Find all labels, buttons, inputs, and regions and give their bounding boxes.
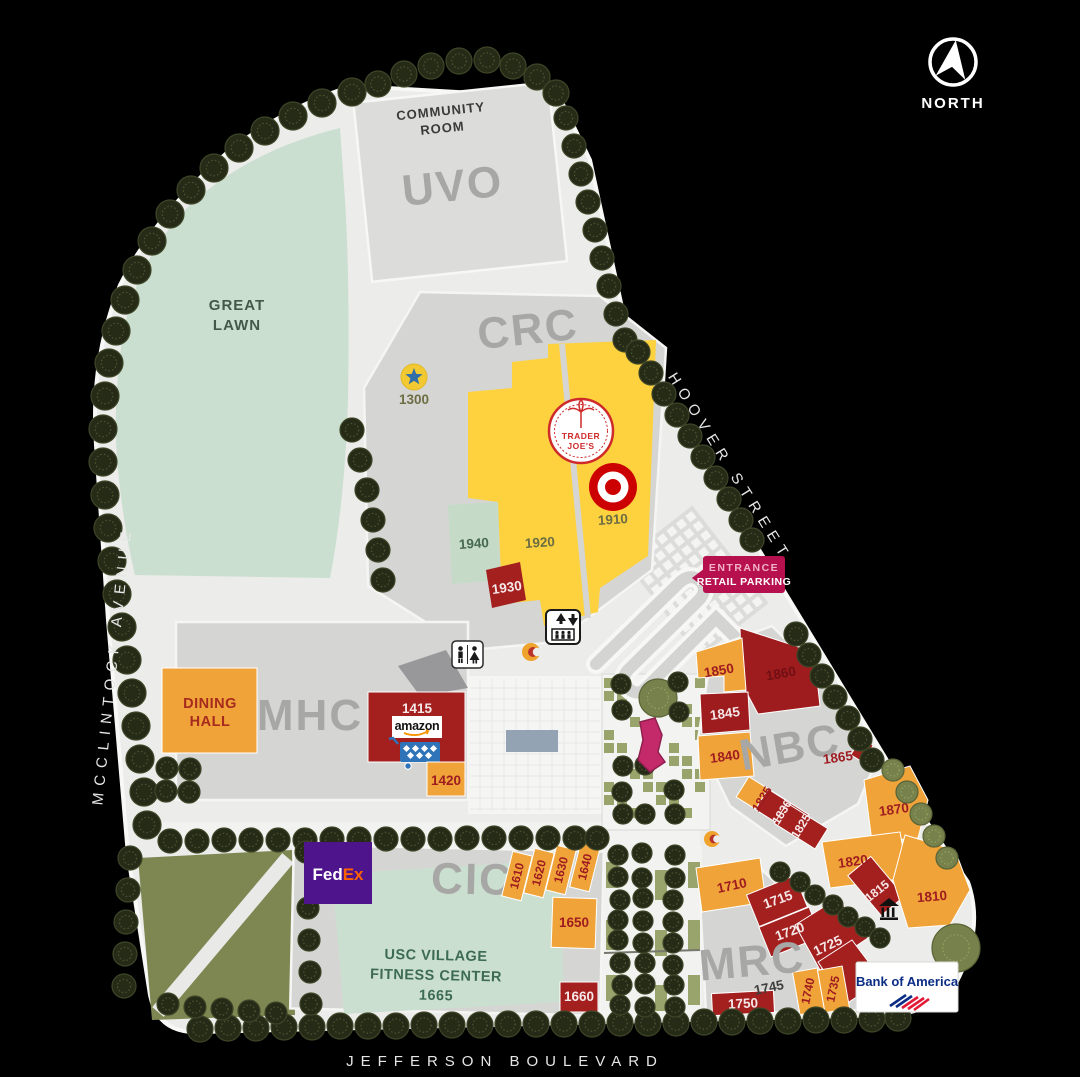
- tree-icon: [632, 868, 652, 888]
- tree-icon: [612, 975, 632, 995]
- tree-icon: [936, 847, 958, 869]
- dining-hall-label: DINING: [183, 696, 237, 712]
- tree-icon: [691, 1009, 717, 1035]
- tree-icon: [179, 758, 201, 780]
- tree-icon: [200, 154, 228, 182]
- tree-icon: [536, 826, 560, 850]
- tree-icon: [635, 974, 655, 994]
- tree-icon: [823, 685, 847, 709]
- tree-icon: [669, 702, 689, 722]
- tree-icon: [509, 826, 533, 850]
- tree-icon: [411, 1012, 437, 1038]
- tree-icon: [608, 845, 628, 865]
- tree-icon: [371, 568, 395, 592]
- tree-icon: [428, 827, 452, 851]
- tree-icon: [116, 878, 140, 902]
- tree-icon: [803, 1007, 829, 1033]
- entrance-retail-parking-sign[interactable]: ENTRANCE RETAIL PARKING: [692, 556, 791, 593]
- elevator-icon: [546, 610, 580, 644]
- usc-village-map: COMMUNITY ROOM UVO GREAT LAWN CRC 1300 T…: [0, 0, 1080, 1077]
- tree-icon: [910, 803, 932, 825]
- tree-icon: [664, 975, 684, 995]
- tree-icon: [300, 993, 322, 1015]
- tree-icon: [590, 246, 614, 270]
- tree-icon: [608, 910, 628, 930]
- tree-icon: [770, 862, 790, 882]
- tree-icon: [184, 996, 206, 1018]
- tree-icon: [474, 47, 500, 73]
- tree-icon: [122, 712, 150, 740]
- tree-icon: [138, 227, 166, 255]
- tree-icon: [665, 997, 685, 1017]
- svg-text:Bank of America: Bank of America: [856, 974, 959, 989]
- svg-text:1665: 1665: [419, 988, 454, 1005]
- tree-icon: [495, 1011, 521, 1037]
- svg-text:1420: 1420: [431, 773, 461, 788]
- tree-icon: [611, 674, 631, 694]
- svg-text:1650: 1650: [559, 915, 589, 930]
- tree-icon: [298, 929, 320, 951]
- tree-icon: [810, 664, 834, 688]
- svg-text:1910: 1910: [597, 511, 628, 528]
- tree-icon: [663, 933, 683, 953]
- tree-icon: [418, 53, 444, 79]
- tree-icon: [665, 804, 685, 824]
- tree-icon: [805, 885, 825, 905]
- tree-icon: [211, 998, 233, 1020]
- tree-icon: [133, 811, 161, 839]
- tree-icon: [585, 826, 609, 850]
- tree-icon: [608, 930, 628, 950]
- tree-icon: [610, 890, 630, 910]
- tree-icon: [610, 953, 630, 973]
- tree-icon: [551, 1011, 577, 1037]
- north-compass: NORTH: [921, 38, 984, 112]
- svg-text:LAWN: LAWN: [213, 317, 261, 334]
- tree-icon: [113, 942, 137, 966]
- tree-icon: [784, 622, 808, 646]
- bank-of-america-sign[interactable]: Bank of America: [856, 962, 959, 1012]
- tree-icon: [112, 974, 136, 998]
- tree-icon: [338, 78, 366, 106]
- tree-icon: [365, 71, 391, 97]
- tree-icon: [663, 890, 683, 910]
- tree-icon: [870, 928, 890, 948]
- uvo-building[interactable]: COMMUNITY ROOM UVO: [353, 82, 567, 282]
- svg-text:ENTRANCE: ENTRANCE: [709, 562, 779, 574]
- tree-icon: [355, 478, 379, 502]
- tree-icon: [225, 134, 253, 162]
- tree-icon: [663, 955, 683, 975]
- tree-icon: [308, 89, 336, 117]
- tree-icon: [608, 867, 628, 887]
- tree-icon: [156, 200, 184, 228]
- tree-icon: [238, 1000, 260, 1022]
- fountain-pool: [506, 730, 558, 752]
- tree-icon: [604, 302, 628, 326]
- tree-icon: [836, 706, 860, 730]
- tree-icon: [583, 218, 607, 242]
- tree-icon: [157, 993, 179, 1015]
- tree-icon: [212, 828, 236, 852]
- tree-icon: [467, 1012, 493, 1038]
- tree-icon: [612, 700, 632, 720]
- north-label: NORTH: [921, 95, 984, 112]
- tree-icon: [266, 828, 290, 852]
- tree-icon: [554, 106, 578, 130]
- restroom-icon: [452, 641, 483, 668]
- tree-icon: [89, 448, 117, 476]
- mrc-label: MRC: [697, 932, 807, 990]
- svg-text:1940: 1940: [458, 535, 489, 552]
- svg-text:HALL: HALL: [190, 714, 231, 730]
- svg-text:JOE'S: JOE'S: [567, 441, 594, 451]
- tree-icon: [91, 481, 119, 509]
- svg-text:RETAIL PARKING: RETAIL PARKING: [697, 576, 792, 588]
- mhc-label: MHC: [257, 691, 363, 740]
- tree-icon: [126, 745, 154, 773]
- tree-icon: [613, 756, 633, 776]
- tree-icon: [185, 829, 209, 853]
- tree-icon: [118, 846, 142, 870]
- tree-icon: [391, 61, 417, 87]
- svg-text:FedEx: FedEx: [312, 865, 364, 884]
- tree-icon: [279, 102, 307, 130]
- tree-icon: [114, 910, 138, 934]
- tree-icon: [523, 1011, 549, 1037]
- map-canvas: COMMUNITY ROOM UVO GREAT LAWN CRC 1300 T…: [0, 0, 1080, 1077]
- svg-text:1415: 1415: [402, 701, 433, 716]
- tree-icon: [299, 961, 321, 983]
- tree-icon: [597, 274, 621, 298]
- tree-icon: [446, 48, 472, 74]
- tree-icon: [500, 53, 526, 79]
- svg-text:1810: 1810: [916, 888, 947, 906]
- tree-icon: [543, 80, 569, 106]
- tree-icon: [635, 804, 655, 824]
- tree-icon: [340, 418, 364, 442]
- fedex-logo[interactable]: FedEx: [304, 842, 372, 904]
- tree-icon: [366, 538, 390, 562]
- svg-text:1660: 1660: [564, 989, 594, 1004]
- tree-icon: [579, 1011, 605, 1037]
- tree-icon: [374, 827, 398, 851]
- target-logo[interactable]: [589, 463, 637, 511]
- tree-icon: [635, 997, 655, 1017]
- jefferson-boulevard-label: JEFFERSON BOULEVARD: [346, 1053, 664, 1070]
- tree-icon: [299, 1014, 325, 1040]
- tree-icon: [155, 780, 177, 802]
- trader-joes-logo[interactable]: TRADER JOE'S: [549, 399, 613, 463]
- tree-icon: [665, 845, 685, 865]
- svg-text:amazon: amazon: [395, 719, 440, 733]
- tree-icon: [569, 162, 593, 186]
- tree-icon: [719, 1009, 745, 1035]
- tree-icon: [102, 317, 130, 345]
- tree-icon: [639, 361, 663, 385]
- tree-icon: [632, 843, 652, 863]
- tree-icon: [178, 781, 200, 803]
- tree-icon: [361, 508, 385, 532]
- svg-text:1300: 1300: [399, 392, 429, 407]
- svg-text:TRADER: TRADER: [562, 431, 600, 441]
- tree-icon: [626, 340, 650, 364]
- tree-icon: [383, 1013, 409, 1039]
- tree-icon: [118, 679, 146, 707]
- tree-icon: [158, 829, 182, 853]
- tree-icon: [355, 1013, 381, 1039]
- tree-icon: [882, 759, 904, 781]
- tree-icon: [635, 953, 655, 973]
- tree-icon: [123, 256, 151, 284]
- tree-icon: [668, 672, 688, 692]
- tree-icon: [111, 286, 139, 314]
- fitness-label: USC VILLAGE: [384, 947, 487, 965]
- tree-icon: [576, 190, 600, 214]
- tree-icon: [613, 804, 633, 824]
- tree-icon: [177, 176, 205, 204]
- tree-icon: [633, 933, 653, 953]
- tree-icon: [633, 911, 653, 931]
- tree-icon: [896, 781, 918, 803]
- svg-text:1920: 1920: [524, 534, 555, 551]
- tree-icon: [251, 117, 279, 145]
- svg-text:FITNESS CENTER: FITNESS CENTER: [370, 967, 502, 986]
- tree-icon: [401, 827, 425, 851]
- tree-icon: [562, 134, 586, 158]
- tree-icon: [187, 1016, 213, 1042]
- tree-icon: [265, 1002, 287, 1024]
- tree-icon: [563, 826, 587, 850]
- tree-icon: [860, 748, 884, 772]
- tree-icon: [665, 868, 685, 888]
- tree-icon: [612, 782, 632, 802]
- tree-icon: [91, 382, 119, 410]
- tree-icon: [797, 643, 821, 667]
- cic-label: CIC: [431, 854, 514, 905]
- tree-icon: [130, 778, 158, 806]
- tree-icon: [610, 995, 630, 1015]
- tree-icon: [95, 349, 123, 377]
- tree-icon: [89, 415, 117, 443]
- tree-icon: [663, 912, 683, 932]
- tree-icon: [664, 780, 684, 800]
- tree-icon: [482, 826, 506, 850]
- tree-icon: [348, 448, 372, 472]
- tree-icon: [923, 825, 945, 847]
- mhc-complex[interactable]: DINING HALL MHC 1415 amazon: [162, 622, 468, 800]
- tree-icon: [747, 1008, 773, 1034]
- tree-icon: [439, 1012, 465, 1038]
- tree-icon: [848, 727, 872, 751]
- great-lawn: [116, 128, 349, 578]
- tree-icon: [775, 1008, 801, 1034]
- tree-icon: [239, 828, 263, 852]
- tree-icon: [831, 1007, 857, 1033]
- tree-icon: [455, 826, 479, 850]
- great-lawn-label: GREAT: [209, 297, 265, 314]
- tree-icon: [156, 757, 178, 779]
- tree-icon: [633, 888, 653, 908]
- tree-icon: [327, 1013, 353, 1039]
